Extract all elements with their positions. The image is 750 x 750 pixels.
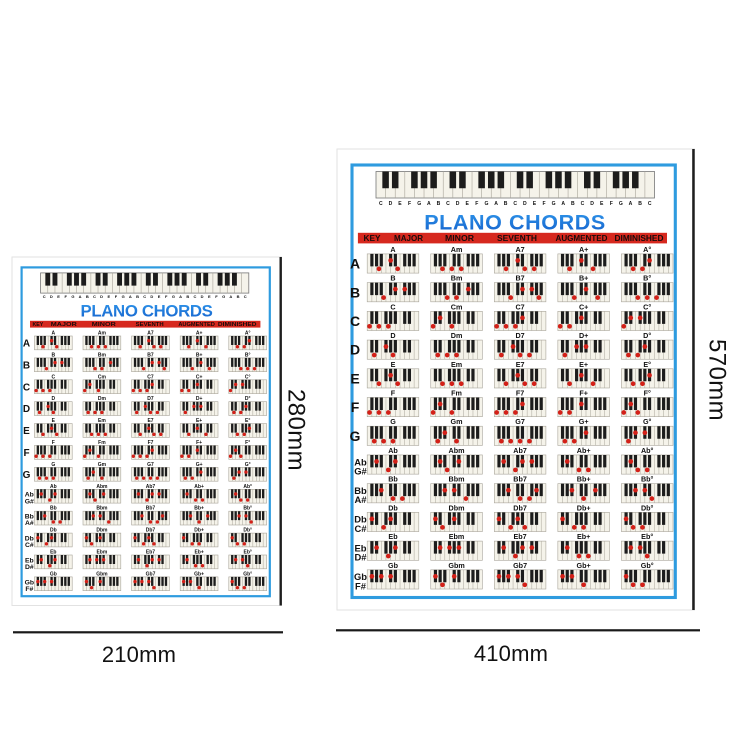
svg-text:Bb°: Bb°: [641, 475, 654, 484]
svg-text:570mm: 570mm: [704, 339, 731, 421]
svg-text:C: C: [648, 201, 652, 207]
svg-text:C#: C#: [25, 542, 34, 549]
svg-text:D#: D#: [25, 564, 34, 571]
svg-text:Db+: Db+: [194, 528, 204, 534]
svg-text:B: B: [186, 294, 189, 299]
svg-text:PLANO CHORDS: PLANO CHORDS: [424, 210, 606, 234]
svg-text:G: G: [390, 417, 396, 426]
svg-text:Db+: Db+: [577, 503, 591, 512]
svg-text:A: A: [229, 294, 232, 299]
svg-text:E7: E7: [147, 418, 153, 424]
svg-text:D+: D+: [196, 396, 203, 402]
svg-text:G+: G+: [579, 417, 589, 426]
svg-text:B°: B°: [643, 274, 651, 283]
svg-text:A7: A7: [515, 245, 524, 254]
svg-text:E+: E+: [579, 360, 588, 369]
svg-text:B7: B7: [147, 352, 154, 358]
svg-text:Bbm: Bbm: [449, 475, 465, 484]
svg-text:C: C: [390, 302, 395, 311]
svg-text:410mm: 410mm: [474, 641, 548, 666]
svg-text:Gbm: Gbm: [448, 561, 464, 570]
svg-text:G: G: [484, 201, 488, 207]
svg-text:Bb: Bb: [50, 506, 57, 512]
svg-text:Ab+: Ab+: [577, 446, 591, 455]
svg-text:A: A: [23, 339, 30, 350]
svg-text:G7: G7: [147, 462, 154, 468]
svg-text:Gm: Gm: [98, 462, 107, 468]
svg-text:Bb7: Bb7: [513, 475, 527, 484]
svg-text:Em: Em: [98, 418, 106, 424]
svg-text:D7: D7: [147, 396, 154, 402]
svg-text:B°: B°: [245, 352, 251, 358]
svg-text:Gb+: Gb+: [577, 561, 591, 570]
svg-text:AUGMENTED: AUGMENTED: [178, 322, 215, 328]
svg-text:E+: E+: [196, 418, 202, 424]
svg-text:Bm: Bm: [98, 352, 107, 358]
svg-text:G°: G°: [643, 417, 652, 426]
svg-text:F: F: [351, 399, 360, 415]
svg-text:B: B: [571, 201, 575, 207]
svg-text:G: G: [417, 201, 421, 207]
svg-text:Dbm: Dbm: [449, 503, 465, 512]
svg-text:Ab7: Ab7: [513, 446, 527, 455]
svg-text:F°: F°: [644, 389, 651, 398]
svg-text:C7: C7: [147, 374, 154, 380]
svg-text:E: E: [158, 294, 161, 299]
svg-text:Ebm: Ebm: [449, 532, 465, 541]
svg-text:Eb°: Eb°: [641, 532, 653, 541]
svg-text:B+: B+: [196, 352, 203, 358]
svg-text:E7: E7: [516, 360, 525, 369]
svg-text:Eb: Eb: [50, 550, 56, 556]
svg-text:C: C: [446, 201, 450, 207]
svg-text:G7: G7: [515, 417, 525, 426]
svg-text:D#: D#: [355, 552, 368, 563]
svg-text:Gb+: Gb+: [194, 571, 204, 577]
svg-text:Fm: Fm: [451, 389, 462, 398]
svg-text:B: B: [86, 294, 89, 299]
svg-text:Gb7: Gb7: [146, 571, 156, 577]
svg-text:D: D: [590, 201, 594, 207]
svg-text:AUGMENTED: AUGMENTED: [556, 234, 608, 243]
svg-text:C°: C°: [643, 302, 651, 311]
svg-text:F: F: [542, 201, 545, 207]
svg-text:F#: F#: [355, 580, 367, 591]
svg-text:A: A: [51, 331, 55, 337]
svg-text:B: B: [51, 352, 55, 358]
svg-text:A#: A#: [25, 520, 34, 527]
svg-text:Db: Db: [50, 528, 57, 534]
svg-text:D: D: [100, 294, 103, 299]
svg-text:C: C: [244, 294, 247, 299]
svg-text:MINOR: MINOR: [445, 234, 474, 243]
svg-text:C#: C#: [355, 523, 368, 534]
svg-text:Gb: Gb: [50, 571, 57, 577]
svg-text:A: A: [390, 245, 395, 254]
svg-text:F: F: [610, 201, 613, 207]
svg-text:210mm: 210mm: [102, 642, 176, 667]
svg-text:C+: C+: [579, 302, 588, 311]
svg-text:B: B: [23, 360, 30, 371]
svg-text:Bb°: Bb°: [243, 506, 252, 512]
svg-text:SEVENTH: SEVENTH: [497, 234, 537, 243]
svg-text:D°: D°: [643, 331, 651, 340]
svg-text:Db7: Db7: [513, 503, 527, 512]
svg-text:Fm: Fm: [98, 440, 106, 446]
svg-text:E°: E°: [643, 360, 651, 369]
svg-text:C: C: [143, 294, 146, 299]
svg-text:F7: F7: [148, 440, 154, 446]
svg-text:Gm: Gm: [451, 417, 463, 426]
svg-text:Ebm: Ebm: [96, 550, 107, 556]
svg-text:B: B: [504, 201, 508, 207]
svg-text:F: F: [475, 201, 478, 207]
svg-text:A7: A7: [147, 331, 154, 337]
svg-text:C7: C7: [515, 302, 524, 311]
svg-text:F+: F+: [579, 389, 588, 398]
svg-text:F: F: [391, 389, 396, 398]
svg-text:A: A: [427, 201, 431, 207]
svg-text:Db°: Db°: [243, 528, 252, 534]
svg-text:C+: C+: [196, 374, 203, 380]
svg-text:C: C: [51, 374, 55, 380]
svg-text:E°: E°: [245, 418, 250, 424]
svg-text:B: B: [350, 284, 360, 300]
svg-text:D: D: [150, 294, 153, 299]
svg-text:G: G: [51, 462, 55, 468]
svg-text:G: G: [552, 201, 556, 207]
svg-text:G#: G#: [354, 465, 367, 476]
svg-text:G: G: [350, 428, 361, 444]
svg-text:280mm: 280mm: [283, 389, 310, 471]
svg-text:Eb7: Eb7: [146, 550, 155, 556]
svg-text:B: B: [437, 201, 441, 207]
svg-text:D7: D7: [515, 331, 524, 340]
svg-text:Eb°: Eb°: [244, 550, 252, 556]
svg-text:A#: A#: [355, 494, 368, 505]
svg-text:D+: D+: [579, 331, 588, 340]
svg-text:B7: B7: [515, 274, 524, 283]
svg-text:Bbm: Bbm: [96, 506, 108, 512]
svg-text:Bb7: Bb7: [146, 506, 156, 512]
svg-text:E: E: [398, 201, 402, 207]
svg-text:A°: A°: [245, 331, 251, 337]
svg-text:Dm: Dm: [98, 396, 107, 402]
svg-text:G+: G+: [196, 462, 203, 468]
svg-text:Em: Em: [451, 360, 462, 369]
svg-text:Am: Am: [98, 331, 107, 337]
svg-text:G°: G°: [245, 462, 251, 468]
svg-text:MINOR: MINOR: [92, 322, 116, 328]
svg-text:D: D: [523, 201, 527, 207]
svg-text:KEY: KEY: [364, 234, 382, 243]
svg-text:G#: G#: [25, 498, 34, 505]
svg-text:D: D: [23, 404, 30, 415]
svg-text:A°: A°: [643, 245, 651, 254]
svg-text:F°: F°: [245, 440, 250, 446]
svg-text:Bm: Bm: [451, 274, 463, 283]
svg-text:F: F: [408, 201, 411, 207]
svg-text:D: D: [350, 342, 360, 358]
svg-text:Ab°: Ab°: [641, 446, 654, 455]
svg-text:MAJOR: MAJOR: [51, 322, 77, 328]
svg-text:D: D: [51, 396, 55, 402]
svg-text:E: E: [57, 294, 60, 299]
svg-text:B+: B+: [579, 274, 588, 283]
svg-text:Db: Db: [388, 503, 398, 512]
svg-text:A: A: [494, 201, 498, 207]
svg-text:Am: Am: [451, 245, 463, 254]
svg-text:A+: A+: [196, 331, 203, 337]
svg-text:E: E: [107, 294, 110, 299]
svg-text:Ab+: Ab+: [194, 484, 204, 490]
svg-text:Bb+: Bb+: [194, 506, 204, 512]
svg-text:F: F: [52, 440, 55, 446]
svg-text:A: A: [629, 201, 633, 207]
svg-text:Eb+: Eb+: [194, 550, 203, 556]
svg-text:Ab: Ab: [50, 484, 57, 490]
svg-text:G: G: [619, 201, 623, 207]
svg-text:Gb7: Gb7: [513, 561, 527, 570]
svg-text:Bb: Bb: [388, 475, 398, 484]
svg-text:B: B: [136, 294, 139, 299]
svg-text:Gb: Gb: [388, 561, 399, 570]
svg-text:C: C: [513, 201, 517, 207]
svg-text:F7: F7: [516, 389, 524, 398]
svg-text:B: B: [390, 274, 395, 283]
svg-text:E: E: [23, 426, 30, 437]
svg-text:Gbm: Gbm: [96, 571, 108, 577]
svg-text:C: C: [194, 294, 197, 299]
svg-text:Ab°: Ab°: [243, 484, 252, 490]
svg-text:G: G: [71, 294, 74, 299]
svg-text:F+: F+: [196, 440, 202, 446]
svg-text:Cm: Cm: [98, 374, 107, 380]
svg-text:A: A: [350, 256, 360, 272]
svg-text:D°: D°: [245, 396, 251, 402]
svg-text:Dm: Dm: [451, 331, 463, 340]
svg-text:B: B: [638, 201, 642, 207]
svg-text:MAJOR: MAJOR: [394, 234, 423, 243]
svg-text:D: D: [50, 294, 53, 299]
svg-text:Db7: Db7: [146, 528, 156, 534]
svg-text:A: A: [561, 201, 565, 207]
svg-text:Gb°: Gb°: [243, 571, 252, 577]
svg-text:A: A: [79, 294, 82, 299]
svg-text:PLANO CHORDS: PLANO CHORDS: [81, 302, 213, 321]
svg-text:A: A: [179, 294, 182, 299]
svg-text:F: F: [23, 448, 29, 459]
svg-text:Ab7: Ab7: [146, 484, 156, 490]
svg-text:Eb: Eb: [388, 532, 398, 541]
svg-text:G: G: [172, 294, 175, 299]
svg-text:E: E: [350, 370, 359, 386]
svg-text:Gb°: Gb°: [641, 561, 654, 570]
svg-text:E: E: [533, 201, 537, 207]
svg-text:E: E: [391, 360, 396, 369]
svg-text:C°: C°: [245, 374, 251, 380]
svg-text:D: D: [389, 201, 393, 207]
svg-text:C: C: [379, 201, 383, 207]
svg-text:C: C: [23, 382, 30, 393]
svg-text:G: G: [23, 470, 31, 481]
svg-text:E: E: [600, 201, 604, 207]
svg-text:C: C: [43, 294, 46, 299]
svg-text:C: C: [350, 313, 360, 329]
svg-text:E: E: [466, 201, 470, 207]
svg-text:Bb+: Bb+: [577, 475, 591, 484]
svg-text:D: D: [390, 331, 395, 340]
svg-text:A+: A+: [579, 245, 588, 254]
svg-text:Db°: Db°: [641, 503, 654, 512]
svg-text:DIMINISHED: DIMINISHED: [218, 322, 257, 328]
svg-text:Abm: Abm: [449, 446, 465, 455]
svg-text:KEY: KEY: [33, 322, 44, 328]
svg-text:Abm: Abm: [96, 484, 108, 490]
svg-text:A: A: [129, 294, 132, 299]
svg-text:SEVENTH: SEVENTH: [136, 322, 164, 328]
svg-text:G: G: [122, 294, 125, 299]
svg-text:Eb7: Eb7: [514, 532, 527, 541]
svg-text:D: D: [201, 294, 204, 299]
svg-text:E: E: [208, 294, 211, 299]
svg-text:D: D: [456, 201, 460, 207]
svg-text:Eb+: Eb+: [577, 532, 590, 541]
svg-text:Cm: Cm: [451, 302, 463, 311]
svg-text:G: G: [222, 294, 225, 299]
svg-text:DIMINISHED: DIMINISHED: [615, 234, 664, 243]
svg-text:C: C: [93, 294, 96, 299]
svg-text:F#: F#: [25, 586, 33, 593]
svg-text:B: B: [237, 294, 240, 299]
svg-text:Dbm: Dbm: [96, 528, 108, 534]
svg-text:C: C: [581, 201, 585, 207]
svg-text:Ab: Ab: [388, 446, 398, 455]
